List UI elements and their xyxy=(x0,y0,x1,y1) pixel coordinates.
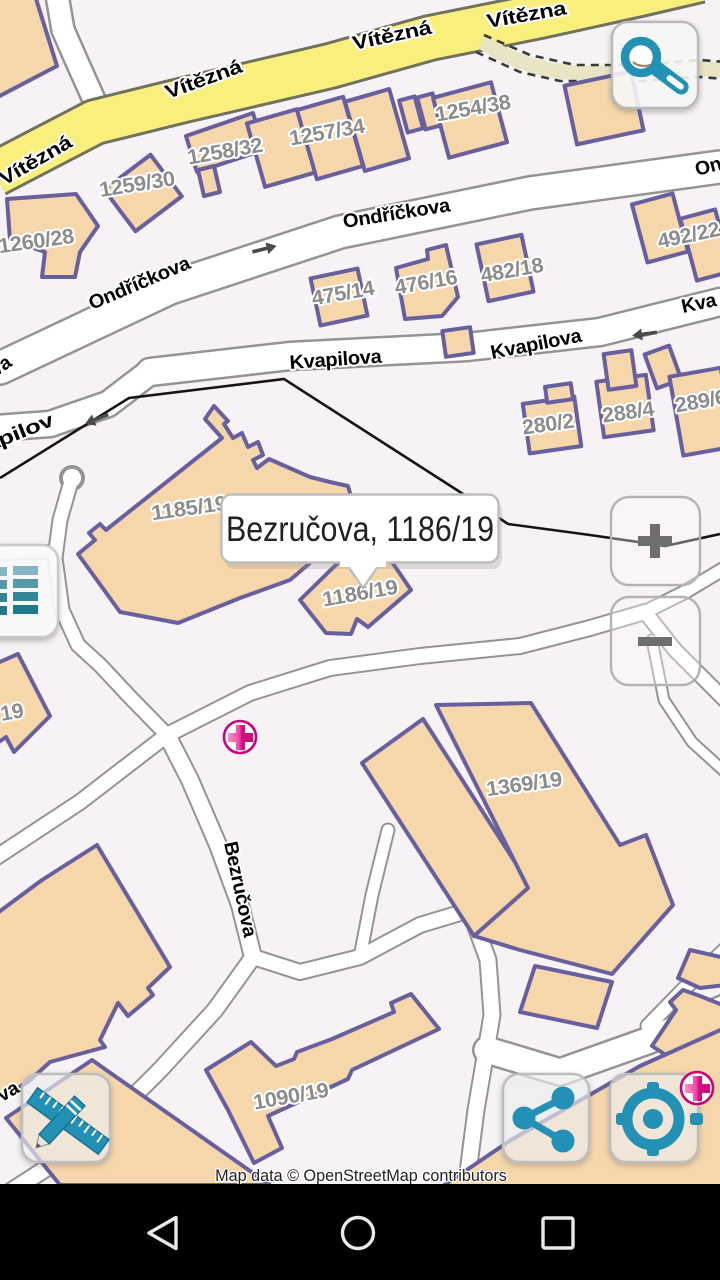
svg-text:Map data © OpenStreetMap contr: Map data © OpenStreetMap contributors xyxy=(215,1167,507,1185)
svg-text:Bezručova, 1186/19: Bezručova, 1186/19 xyxy=(226,510,494,549)
svg-text:19: 19 xyxy=(0,699,25,726)
